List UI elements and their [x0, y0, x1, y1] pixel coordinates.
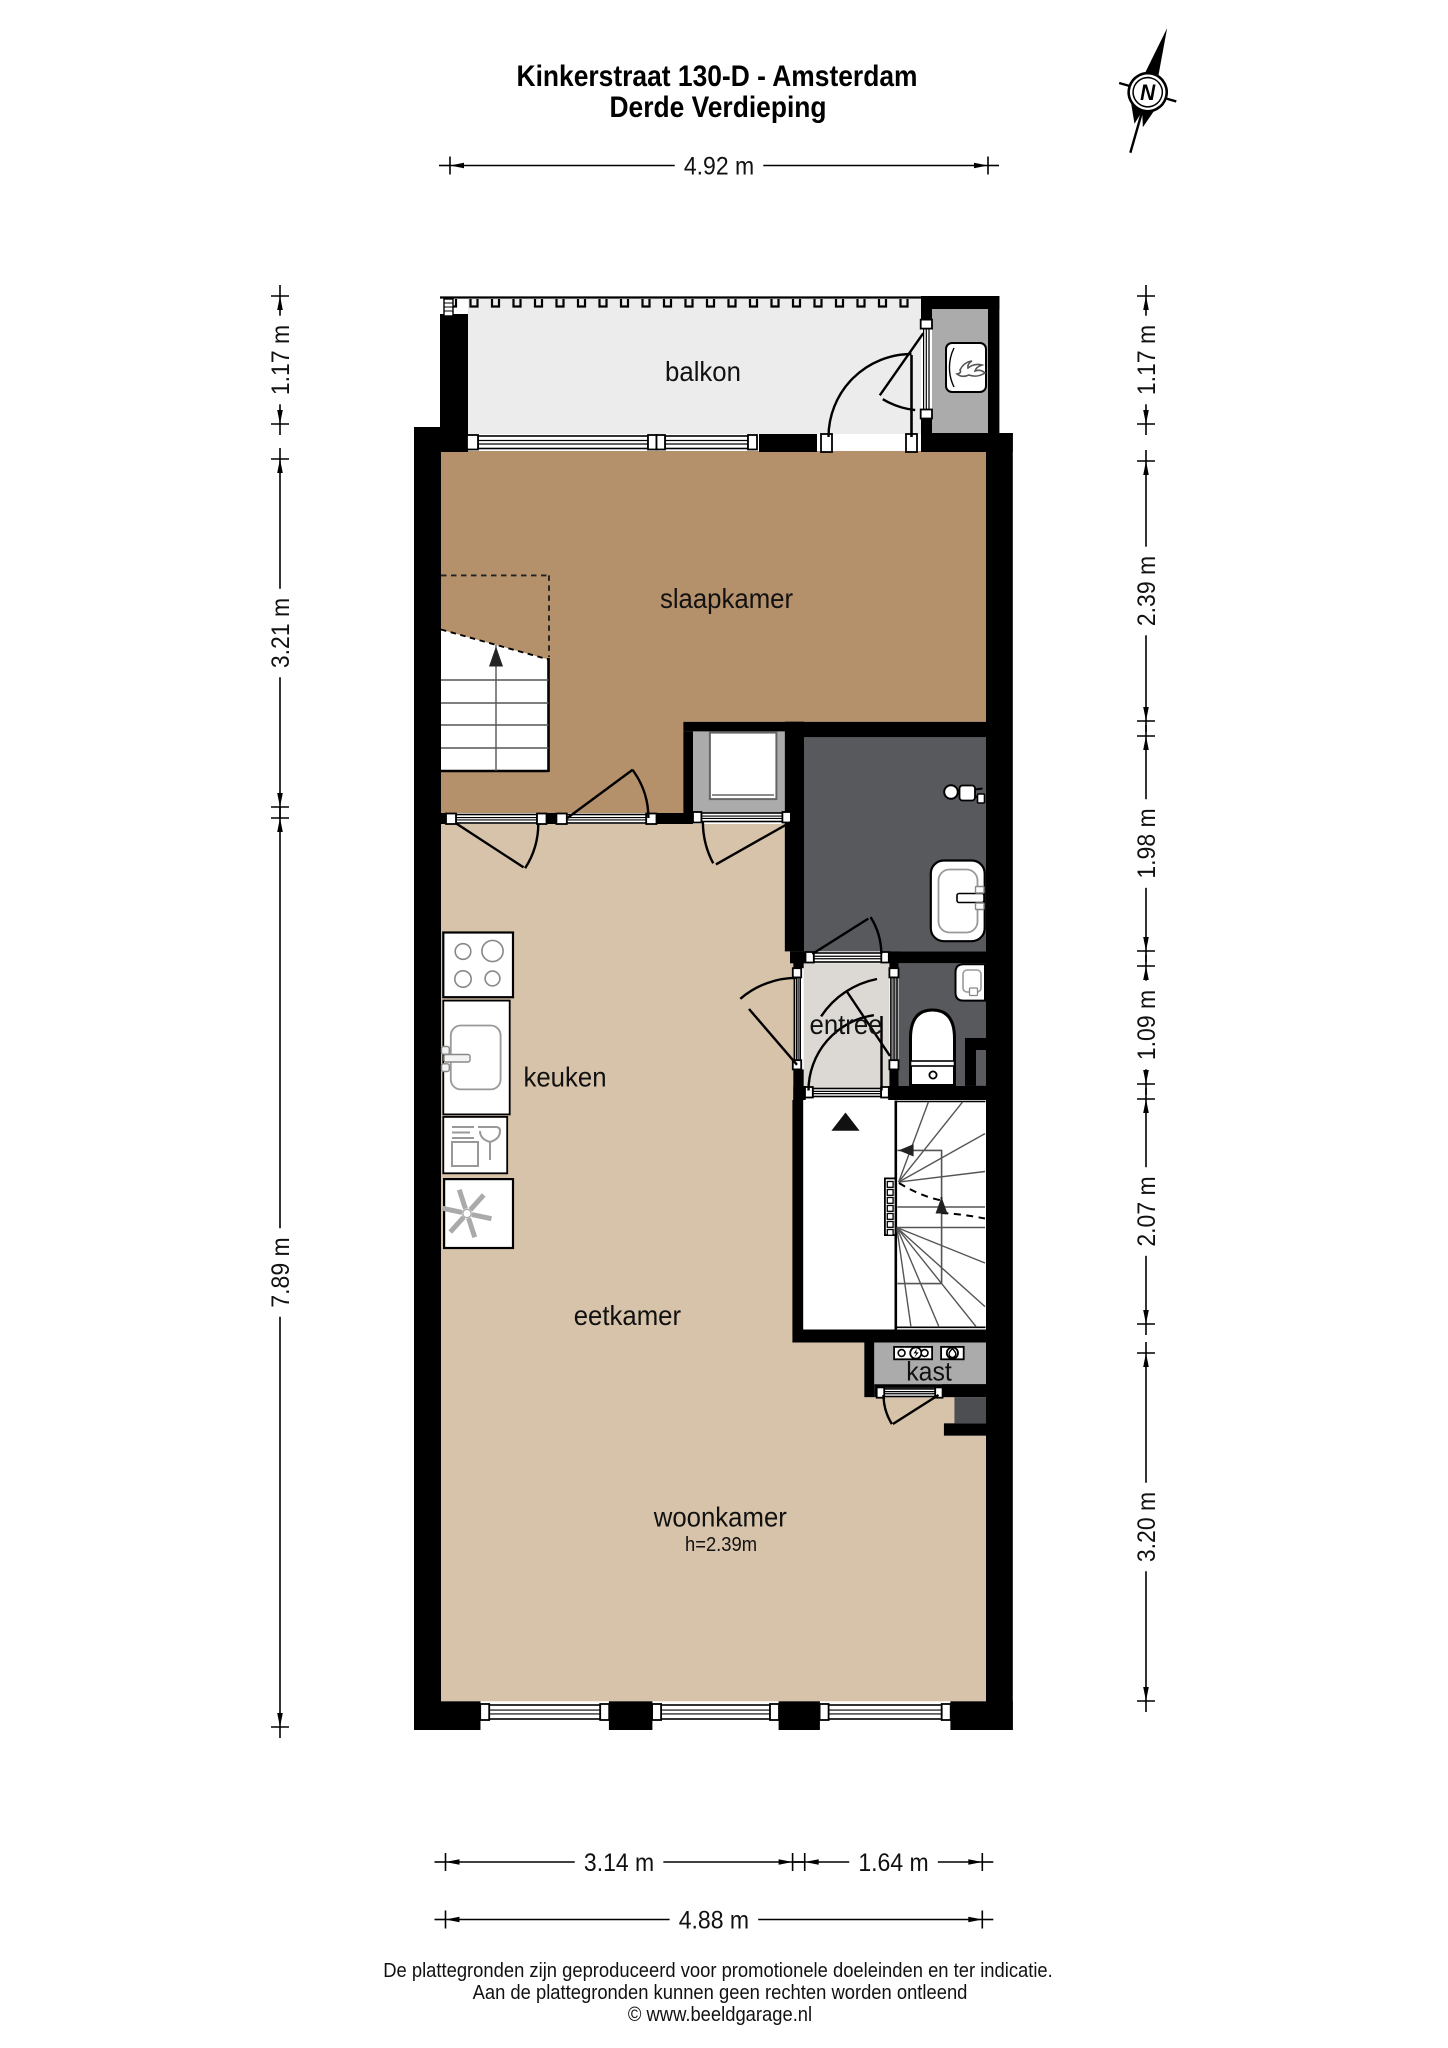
svg-text:Kinkerstraat 130-D - Amsterdam: Kinkerstraat 130-D - Amsterdam [517, 58, 918, 92]
svg-text:h=2.39m: h=2.39m [685, 1534, 757, 1556]
svg-text:entree: entree [809, 1009, 882, 1040]
svg-text:© www.beeldgarage.nl: © www.beeldgarage.nl [628, 2004, 812, 2026]
svg-text:1.09 m: 1.09 m [1133, 990, 1161, 1060]
svg-text:1.98 m: 1.98 m [1133, 808, 1161, 878]
svg-text:1.17 m: 1.17 m [267, 325, 295, 395]
svg-text:2.07 m: 2.07 m [1133, 1176, 1161, 1246]
svg-text:2.39 m: 2.39 m [1133, 556, 1161, 626]
svg-text:3.14 m: 3.14 m [584, 1849, 654, 1877]
svg-text:3.20 m: 3.20 m [1133, 1492, 1161, 1562]
svg-text:N: N [1140, 81, 1156, 106]
svg-text:4.88 m: 4.88 m [679, 1907, 749, 1935]
svg-text:De plattegronden zijn geproduc: De plattegronden zijn geproduceerd voor … [383, 1960, 1053, 1982]
svg-text:kast: kast [906, 1358, 952, 1387]
svg-text:4.92 m: 4.92 m [684, 153, 754, 181]
svg-text:1.17 m: 1.17 m [1133, 325, 1161, 395]
svg-text:7.89 m: 7.89 m [267, 1237, 295, 1307]
svg-text:keuken: keuken [523, 1062, 606, 1093]
svg-text:Aan de plattegronden kunnen ge: Aan de plattegronden kunnen geen rechten… [473, 1982, 968, 2004]
svg-text:Derde Verdieping: Derde Verdieping [609, 89, 826, 123]
svg-text:slaapkamer: slaapkamer [660, 583, 793, 614]
svg-text:woonkamer: woonkamer [653, 1502, 787, 1533]
svg-text:balkon: balkon [665, 356, 741, 387]
svg-text:3.21 m: 3.21 m [267, 598, 295, 668]
svg-text:1.64 m: 1.64 m [858, 1849, 928, 1877]
svg-text:eetkamer: eetkamer [574, 1300, 681, 1331]
